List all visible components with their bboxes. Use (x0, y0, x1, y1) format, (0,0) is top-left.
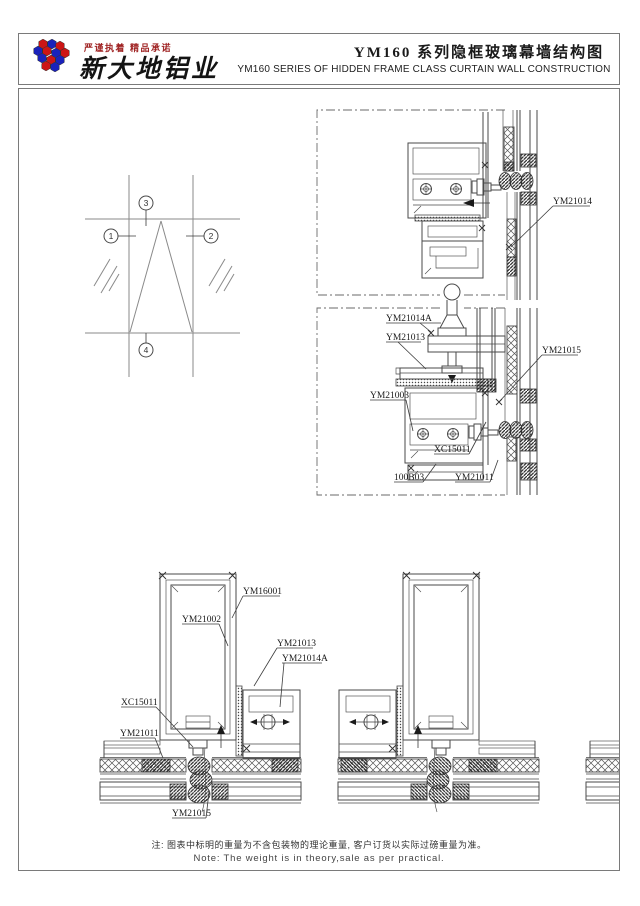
svg-text:YM21014A: YM21014A (282, 654, 328, 664)
drawing-title-en: YM160 SERIES OF HIDDEN FRAME CLASS CURTA… (224, 64, 624, 75)
anchor-bolt-head (444, 284, 460, 300)
svg-text:100B03: 100B03 (394, 473, 424, 483)
elevation-key-diagram: 3 1 2 4 (85, 175, 240, 377)
detail-marker-3: 3 (139, 196, 153, 226)
svg-text:3: 3 (144, 198, 149, 208)
svg-text:1: 1 (109, 231, 114, 241)
mullion-unit-left (100, 572, 301, 812)
label-ym16001: YM16001 (232, 587, 282, 618)
svg-text:YM16001: YM16001 (243, 587, 282, 597)
wall-column-top (503, 110, 537, 300)
label-ym21003: YM21003 (370, 391, 413, 431)
label-ym21014a-plan: YM21014A (280, 654, 328, 707)
label-xc15011: XC15011 (434, 422, 486, 455)
svg-text:YM21013: YM21013 (277, 639, 316, 649)
glass-panel-middle (477, 308, 496, 392)
svg-text:YM21002: YM21002 (182, 615, 221, 625)
middle-section-detail: YM21014A YM21013 YM21015 YM2 (317, 300, 581, 495)
mullion-unit-partial (586, 572, 619, 812)
svg-text:YM21014A: YM21014A (386, 314, 432, 324)
label-ym21013: YM21013 (386, 333, 426, 369)
detail-marker-1: 1 (104, 229, 136, 243)
svg-text:YM21013: YM21013 (386, 333, 425, 343)
sealant-bead-middle (499, 422, 533, 439)
svg-text:2: 2 (209, 231, 214, 241)
svg-text:YM21014: YM21014 (553, 197, 592, 207)
note-text-cn: 注: 图表中标明的重量为不含包装物的理论重量, 客户订货以实际过磅重量为准。 (19, 838, 619, 851)
glass-hatch-left (94, 259, 119, 293)
footer-note: 注: 图表中标明的重量为不含包装物的理论重量, 客户订货以实际过磅重量为准。 N… (19, 838, 619, 864)
wall-column-middle (505, 308, 537, 495)
detail-marker-4: 4 (139, 333, 153, 357)
sealant-bead-top (499, 173, 533, 190)
glass-hatch-right (209, 259, 234, 293)
label-ym21011-plan: YM21011 (120, 729, 163, 758)
svg-text:4: 4 (144, 345, 149, 355)
mullion-unit-right (338, 572, 539, 812)
svg-text:XC15011: XC15011 (121, 698, 158, 708)
svg-text:YM21011: YM21011 (455, 473, 494, 483)
top-section-detail: YM21014 (317, 110, 592, 300)
label-ym21014: YM21014 (506, 197, 592, 250)
label-ym21002: YM21002 (182, 615, 228, 646)
logo-hexagon-cluster (34, 39, 70, 72)
svg-text:YM21015: YM21015 (172, 809, 211, 819)
cad-drawing: 3 1 2 4 (19, 89, 619, 870)
opening-window-symbol (130, 221, 192, 332)
svg-text:YM21015: YM21015 (542, 346, 581, 356)
gasket-strip-top (415, 215, 480, 221)
svg-text:YM21003: YM21003 (370, 391, 409, 401)
header-box: 严谨执着 精品承诺 新大地铝业 YM160 系列隐框玻璃幕墙结构图 YM160 … (18, 33, 620, 85)
bottom-plan-detail: YM16001 YM21002 YM21013 YM21014A (100, 572, 619, 819)
drawing-sheet: 严谨执着 精品承诺 新大地铝业 YM160 系列隐框玻璃幕墙结构图 YM160 … (0, 0, 640, 906)
detail-marker-2: 2 (186, 229, 218, 243)
drawing-area-box: 3 1 2 4 (18, 88, 620, 871)
transom-frame-top (408, 143, 501, 218)
svg-text:YM21011: YM21011 (120, 729, 159, 739)
company-logo (29, 37, 75, 81)
drawing-title-cn: YM160 系列隐框玻璃幕墙结构图 (331, 41, 627, 62)
note-text-en: Note: The weight is in theory,sale as pe… (19, 853, 619, 864)
company-name: 新大地铝业 (79, 49, 219, 85)
svg-text:XC15011: XC15011 (434, 445, 471, 455)
